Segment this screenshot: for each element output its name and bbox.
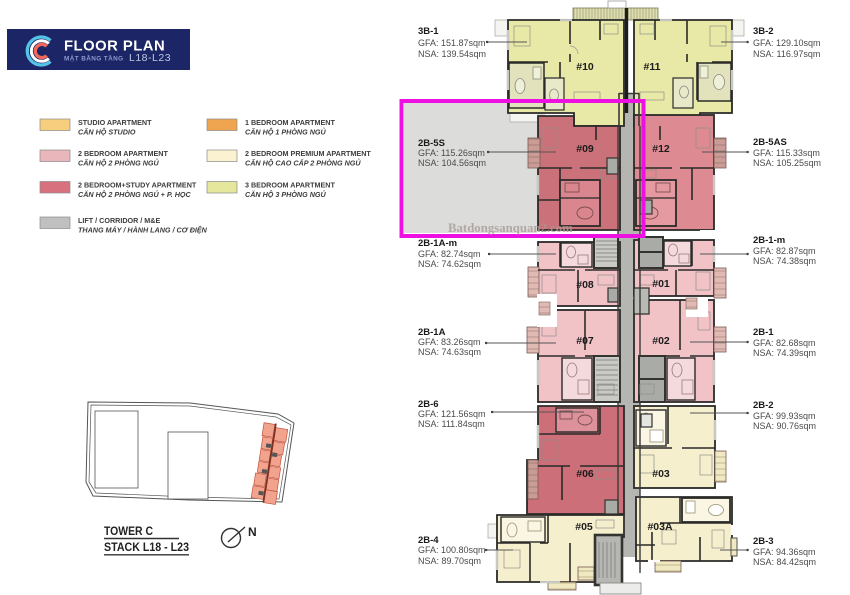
svg-text:NSA: 111.84sqm: NSA: 111.84sqm xyxy=(418,419,485,429)
svg-text:2B-1-m: 2B-1-m xyxy=(753,235,785,246)
svg-text:2B-1A-m: 2B-1A-m xyxy=(418,238,457,249)
svg-text:GFA: 121.56sqm: GFA: 121.56sqm xyxy=(418,409,486,419)
svg-text:CĂN HỘ 1 PHÒNG NGỦ: CĂN HỘ 1 PHÒNG NGỦ xyxy=(245,128,326,137)
svg-text:GFA: 115.26sqm: GFA: 115.26sqm xyxy=(418,148,485,158)
svg-text:CĂN HỘ STUDIO: CĂN HỘ STUDIO xyxy=(78,128,136,137)
svg-text:GFA: 115.33sqm: GFA: 115.33sqm xyxy=(753,148,820,158)
svg-text:#11: #11 xyxy=(644,61,661,73)
svg-text:CĂN HỘ 2 PHÒNG NGỦ + P. HỌC: CĂN HỘ 2 PHÒNG NGỦ + P. HỌC xyxy=(78,190,191,199)
svg-text:L18-L23: L18-L23 xyxy=(129,52,171,64)
svg-text:STUDIO APARTMENT: STUDIO APARTMENT xyxy=(78,118,152,127)
svg-text:NSA: 104.56sqm: NSA: 104.56sqm xyxy=(418,158,486,168)
svg-text:TOWER C: TOWER C xyxy=(104,524,153,538)
svg-text:GFA: 82.87sqm: GFA: 82.87sqm xyxy=(753,246,816,256)
svg-text:3B-2: 3B-2 xyxy=(753,26,774,37)
svg-text:GFA: 151.87sqm: GFA: 151.87sqm xyxy=(418,38,486,48)
svg-text:GFA: 99.93sqm: GFA: 99.93sqm xyxy=(753,411,816,421)
svg-text:NSA: 84.42sqm: NSA: 84.42sqm xyxy=(753,557,816,567)
svg-text:#03: #03 xyxy=(652,468,670,480)
svg-text:1 BEDROOM APARTMENT: 1 BEDROOM APARTMENT xyxy=(245,118,335,127)
svg-text:THANG MÁY / HÀNH LANG / CƠ ĐIỆ: THANG MÁY / HÀNH LANG / CƠ ĐIỆN xyxy=(78,226,208,235)
svg-text:#01: #01 xyxy=(652,278,670,290)
svg-text:#12: #12 xyxy=(652,143,670,155)
svg-text:N: N xyxy=(248,525,257,539)
svg-text:2B-5AS: 2B-5AS xyxy=(753,137,787,148)
svg-text:GFA: 82.68sqm: GFA: 82.68sqm xyxy=(753,338,816,348)
svg-text:STACK L18 - L23: STACK L18 - L23 xyxy=(104,540,189,554)
svg-text:#02: #02 xyxy=(652,335,670,347)
svg-text:GFA: 83.26sqm: GFA: 83.26sqm xyxy=(418,337,481,347)
svg-text:NSA: 74.39sqm: NSA: 74.39sqm xyxy=(753,348,816,358)
svg-text:#05: #05 xyxy=(575,521,593,533)
svg-text:CĂN HỘ 3 PHÒNG NGỦ: CĂN HỘ 3 PHÒNG NGỦ xyxy=(245,190,326,199)
svg-text:LIFT / CORRIDOR / M&E: LIFT / CORRIDOR / M&E xyxy=(78,216,160,225)
svg-text:2 BEDROOM APARTMENT: 2 BEDROOM APARTMENT xyxy=(78,149,168,158)
svg-text:NSA: 139.54sqm: NSA: 139.54sqm xyxy=(418,49,486,59)
svg-text:3 BEDROOM APARTMENT: 3 BEDROOM APARTMENT xyxy=(245,181,335,190)
svg-text:2 BEDROOM+STUDY APARTMENT: 2 BEDROOM+STUDY APARTMENT xyxy=(78,181,197,190)
svg-text:3B-1: 3B-1 xyxy=(418,26,439,37)
svg-text:2 BEDROOM PREMIUM APARTMENT: 2 BEDROOM PREMIUM APARTMENT xyxy=(245,149,371,158)
svg-text:2B-3: 2B-3 xyxy=(753,536,774,547)
svg-text:GFA: 100.80sqm: GFA: 100.80sqm xyxy=(418,545,486,555)
svg-text:#10: #10 xyxy=(576,61,594,73)
svg-text:NSA: 90.76sqm: NSA: 90.76sqm xyxy=(753,421,816,431)
svg-text:#08: #08 xyxy=(576,279,594,291)
svg-text:GFA: 94.36sqm: GFA: 94.36sqm xyxy=(753,547,816,557)
svg-text:NSA: 89.70sqm: NSA: 89.70sqm xyxy=(418,556,481,566)
svg-text:NSA: 116.97sqm: NSA: 116.97sqm xyxy=(753,49,820,59)
svg-text:Batdongsanquan2.com: Batdongsanquan2.com xyxy=(448,221,573,235)
svg-text:NSA: 74.62sqm: NSA: 74.62sqm xyxy=(418,259,481,269)
svg-text:#03A: #03A xyxy=(647,521,673,533)
svg-text:#09: #09 xyxy=(576,143,594,155)
svg-text:2B-2: 2B-2 xyxy=(753,400,774,411)
svg-text:CĂN HỘ 2 PHÒNG NGỦ: CĂN HỘ 2 PHÒNG NGỦ xyxy=(78,159,159,168)
svg-text:NSA: 74.63sqm: NSA: 74.63sqm xyxy=(418,347,481,357)
svg-text:2B-1: 2B-1 xyxy=(753,327,774,338)
svg-text:#06: #06 xyxy=(576,468,594,480)
svg-text:GFA: 82.74sqm: GFA: 82.74sqm xyxy=(418,249,481,259)
svg-text:GFA: 129.10sqm: GFA: 129.10sqm xyxy=(753,38,821,48)
svg-text:CĂN HỘ CAO CẤP 2 PHÒNG NGỦ: CĂN HỘ CAO CẤP 2 PHÒNG NGỦ xyxy=(245,159,361,168)
svg-text:NSA: 105.25sqm: NSA: 105.25sqm xyxy=(753,158,821,168)
svg-text:#07: #07 xyxy=(576,335,594,347)
svg-text:NSA: 74.38sqm: NSA: 74.38sqm xyxy=(753,256,816,266)
